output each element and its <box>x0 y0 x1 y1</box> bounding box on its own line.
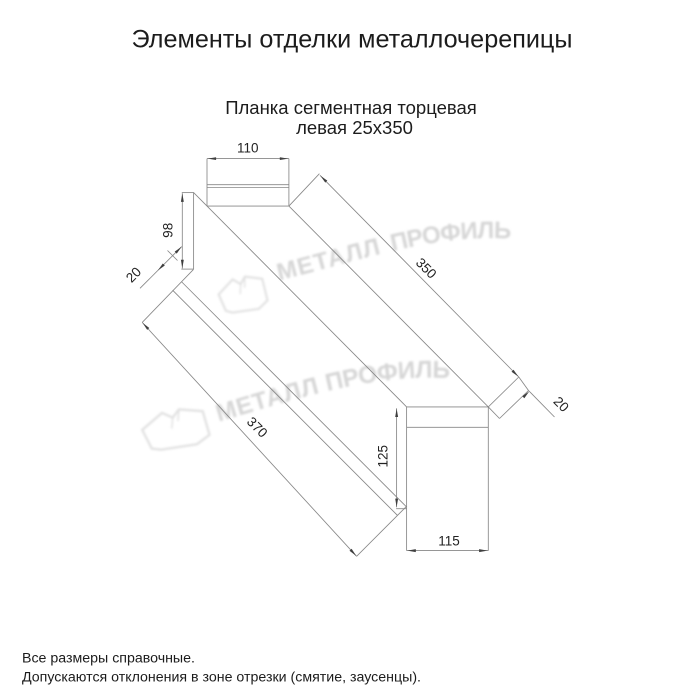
svg-text:115: 115 <box>438 534 460 549</box>
svg-text:Все размеры справочные.: Все размеры справочные. <box>22 651 195 667</box>
svg-text:левая 25х350: левая 25х350 <box>296 117 413 138</box>
svg-text:125: 125 <box>376 445 391 468</box>
svg-text:Элементы отделки металлочерепи: Элементы отделки металлочерепицы <box>132 26 573 54</box>
svg-text:98: 98 <box>160 223 175 238</box>
svg-text:110: 110 <box>237 140 259 155</box>
svg-text:Планка сегментная торцевая: Планка сегментная торцевая <box>225 97 477 118</box>
svg-text:Допускаются отклонения в зоне: Допускаются отклонения в зоне отрезки (с… <box>22 670 421 686</box>
